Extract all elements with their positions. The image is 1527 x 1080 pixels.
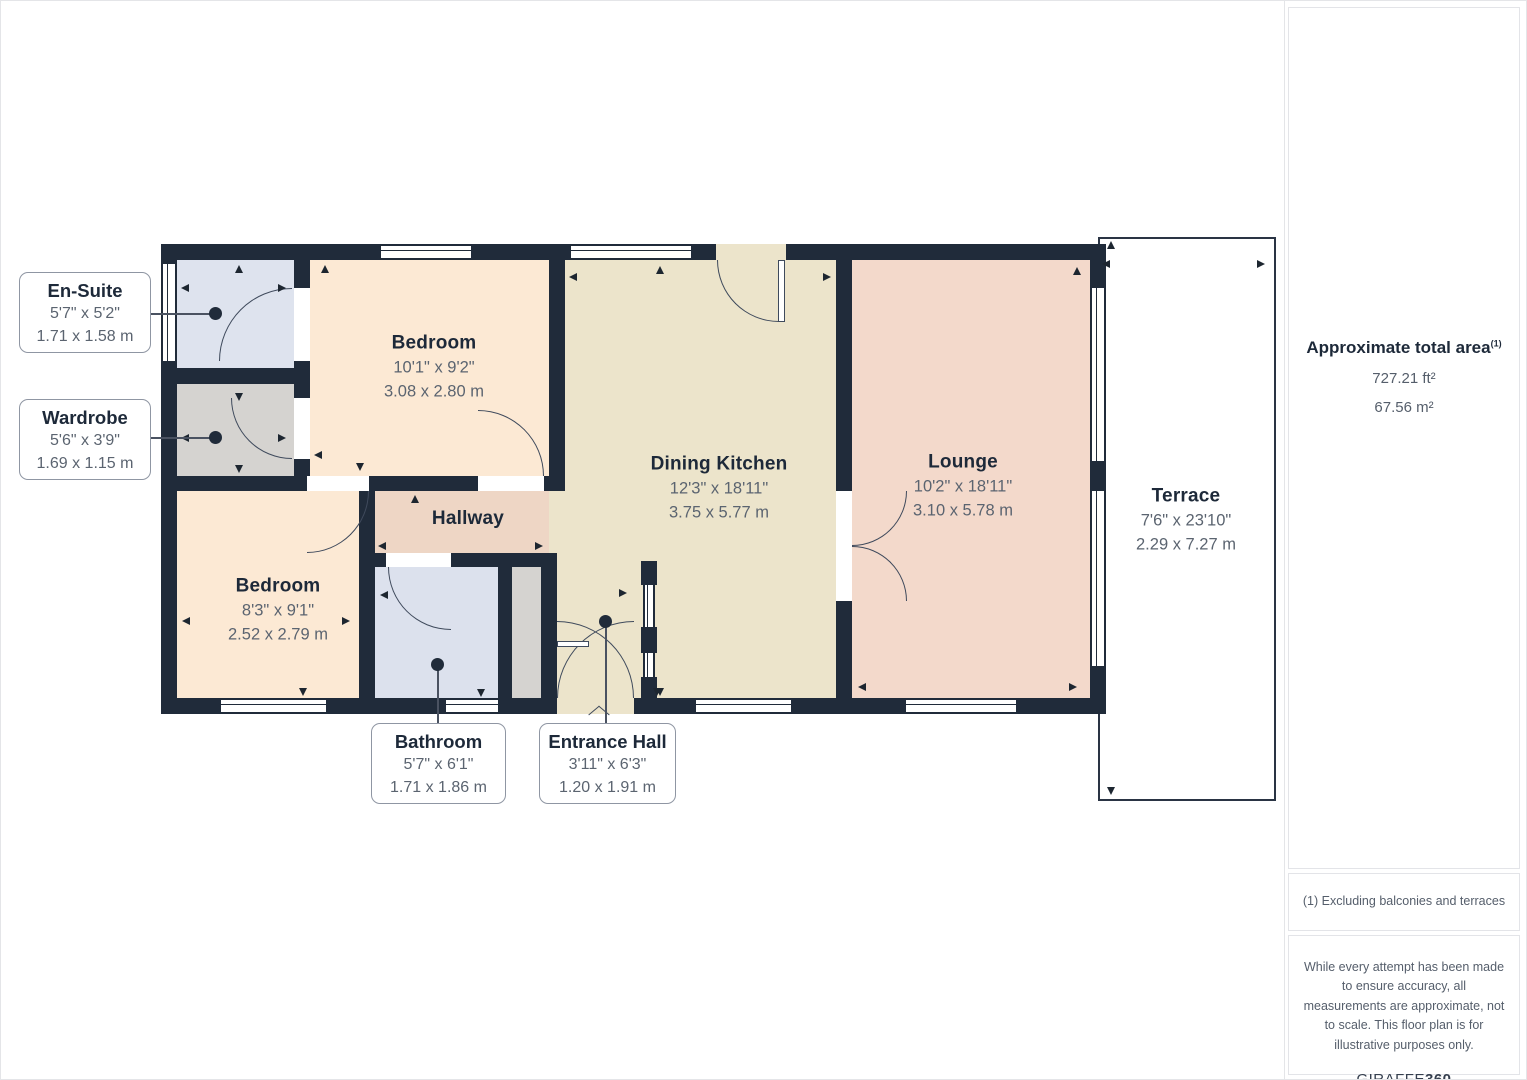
leader-line	[151, 313, 215, 315]
measure-arrow-icon	[477, 689, 485, 697]
leader-line	[151, 437, 215, 439]
room-dims-metric: 1.20 x 1.91 m	[544, 777, 671, 799]
room-dims-metric: 3.10 x 5.78 m	[913, 500, 1013, 522]
total-area-m: 67.56 m²	[1289, 399, 1519, 416]
window	[446, 698, 498, 714]
disclaimer-text: While every attempt has been made to ens…	[1289, 936, 1519, 1055]
leader-line	[437, 669, 439, 723]
room-dims-metric: 3.08 x 2.80 m	[384, 381, 484, 403]
door-opening	[557, 698, 634, 714]
room-dims-imperial: 12'3" x 18'11"	[651, 478, 788, 500]
wall	[294, 260, 310, 288]
sidebar-disclaimer-panel: While every attempt has been made to ens…	[1288, 935, 1520, 1075]
window	[571, 244, 691, 260]
measure-arrow-icon	[535, 542, 543, 550]
brand-name: GIRAFFE	[1356, 1071, 1425, 1080]
measure-arrow-icon	[278, 284, 286, 292]
room-label-hallway: Hallway	[432, 508, 504, 530]
room-dims-imperial: 7'6" x 23'10"	[1136, 510, 1236, 532]
wall	[369, 476, 478, 491]
measure-arrow-icon	[299, 688, 307, 696]
window	[1090, 491, 1106, 666]
sidebar-note-panel: (1) Excluding balconies and terraces	[1288, 873, 1520, 931]
room-label-lounge: Lounge 10'2" x 18'11" 3.10 x 5.78 m	[913, 452, 1013, 523]
footnote-text: (1) Excluding balconies and terraces	[1289, 874, 1519, 908]
wall	[294, 459, 310, 476]
floorplan-canvas: Bedroom 10'1" x 9'2" 3.08 x 2.80 m Bedro…	[0, 0, 1527, 1080]
wall	[836, 260, 852, 491]
room-dims-metric: 1.69 x 1.15 m	[24, 453, 146, 475]
measure-arrow-icon	[235, 265, 243, 273]
room-name: Hallway	[432, 508, 504, 530]
wall	[541, 553, 557, 714]
measure-arrow-icon	[356, 463, 364, 471]
measure-arrow-icon	[342, 617, 350, 625]
wall	[836, 601, 852, 714]
closet-floor	[512, 567, 541, 698]
measure-arrow-icon	[235, 465, 243, 473]
room-name: Entrance Hall	[544, 731, 671, 753]
measure-arrow-icon	[182, 617, 190, 625]
leader-line	[605, 627, 607, 723]
measure-arrow-icon	[181, 284, 189, 292]
measure-arrow-icon	[411, 495, 419, 503]
room-label-bedroom-2: Bedroom 8'3" x 9'1" 2.52 x 2.79 m	[228, 576, 328, 647]
room-dims-metric: 3.75 x 5.77 m	[651, 502, 788, 524]
window	[1090, 288, 1106, 461]
interior-window	[643, 653, 655, 677]
measure-arrow-icon	[1069, 683, 1077, 691]
measure-arrow-icon	[1102, 260, 1110, 268]
wall	[177, 368, 310, 384]
room-dims-imperial: 5'6" x 3'9"	[24, 430, 146, 452]
measure-arrow-icon	[1107, 241, 1115, 249]
door-leaf	[778, 260, 785, 322]
measure-arrow-icon	[1107, 787, 1115, 795]
giraffe360-logo: GIRAFFE360	[1289, 1071, 1519, 1080]
callout-entrance-hall: Entrance Hall 3'11" x 6'3" 1.20 x 1.91 m	[539, 723, 676, 804]
room-dims-imperial: 5'7" x 5'2"	[24, 303, 146, 325]
measure-arrow-icon	[619, 589, 627, 597]
measure-arrow-icon	[278, 434, 286, 442]
room-name: Bedroom	[384, 333, 484, 355]
wall	[641, 561, 657, 585]
measure-arrow-icon	[235, 393, 243, 401]
room-dims-imperial: 10'1" x 9'2"	[384, 357, 484, 379]
wall	[641, 627, 657, 653]
room-dot	[431, 658, 444, 671]
room-name: Lounge	[913, 452, 1013, 474]
measure-arrow-icon	[656, 266, 664, 274]
window	[906, 698, 1016, 714]
total-area-block: Approximate total area(1) 727.21 ft² 67.…	[1289, 8, 1519, 416]
room-dims-metric: 1.71 x 1.86 m	[376, 777, 501, 799]
measure-arrow-icon	[569, 273, 577, 281]
measure-arrow-icon	[1257, 260, 1265, 268]
room-dims-imperial: 8'3" x 9'1"	[228, 600, 328, 622]
wall	[498, 553, 512, 714]
wall	[161, 476, 307, 491]
door-opening	[716, 244, 786, 260]
measure-arrow-icon	[380, 591, 388, 599]
window	[696, 698, 791, 714]
room-name: Bathroom	[376, 731, 501, 753]
room-name: En-Suite	[24, 280, 146, 302]
measure-arrow-icon	[1073, 267, 1081, 275]
window	[381, 244, 471, 260]
footnote-mark: (1)	[1491, 338, 1502, 348]
room-dims-imperial: 3'11" x 6'3"	[544, 754, 671, 776]
room-name: Terrace	[1136, 486, 1236, 508]
measure-arrow-icon	[823, 273, 831, 281]
room-label-terrace: Terrace 7'6" x 23'10" 2.29 x 7.27 m	[1136, 486, 1236, 557]
measure-arrow-icon	[321, 265, 329, 273]
interior-window	[643, 585, 655, 627]
measure-arrow-icon	[858, 683, 866, 691]
room-name: Dining Kitchen	[651, 454, 788, 476]
room-dims-imperial: 10'2" x 18'11"	[913, 476, 1013, 498]
room-dims-metric: 1.71 x 1.58 m	[24, 326, 146, 348]
room-dims-imperial: 5'7" x 6'1"	[376, 754, 501, 776]
total-area-title: Approximate total area(1)	[1289, 338, 1519, 358]
room-name: Bedroom	[228, 576, 328, 598]
sidebar-area-panel: Approximate total area(1) 727.21 ft² 67.…	[1288, 7, 1520, 869]
room-label-dining-kitchen: Dining Kitchen 12'3" x 18'11" 3.75 x 5.7…	[651, 454, 788, 525]
measure-arrow-icon	[378, 542, 386, 550]
door-leaf	[557, 641, 589, 647]
room-dims-metric: 2.52 x 2.79 m	[228, 624, 328, 646]
window	[221, 698, 326, 714]
total-area-ft: 727.21 ft²	[1289, 370, 1519, 387]
wall	[549, 260, 565, 491]
room-label-bedroom-1: Bedroom 10'1" x 9'2" 3.08 x 2.80 m	[384, 333, 484, 404]
room-dot	[209, 307, 222, 320]
wall	[359, 491, 375, 714]
sidebar-divider	[1284, 1, 1285, 1080]
brand-suffix: 360	[1425, 1071, 1452, 1080]
measure-arrow-icon	[314, 451, 322, 459]
room-name: Wardrobe	[24, 407, 146, 429]
callout-ensuite: En-Suite 5'7" x 5'2" 1.71 x 1.58 m	[19, 272, 151, 353]
room-dims-metric: 2.29 x 7.27 m	[1136, 534, 1236, 556]
room-dot	[599, 615, 612, 628]
room-dot	[209, 431, 222, 444]
measure-arrow-icon	[653, 688, 661, 696]
callout-wardrobe: Wardrobe 5'6" x 3'9" 1.69 x 1.15 m	[19, 399, 151, 480]
callout-bathroom: Bathroom 5'7" x 6'1" 1.71 x 1.86 m	[371, 723, 506, 804]
